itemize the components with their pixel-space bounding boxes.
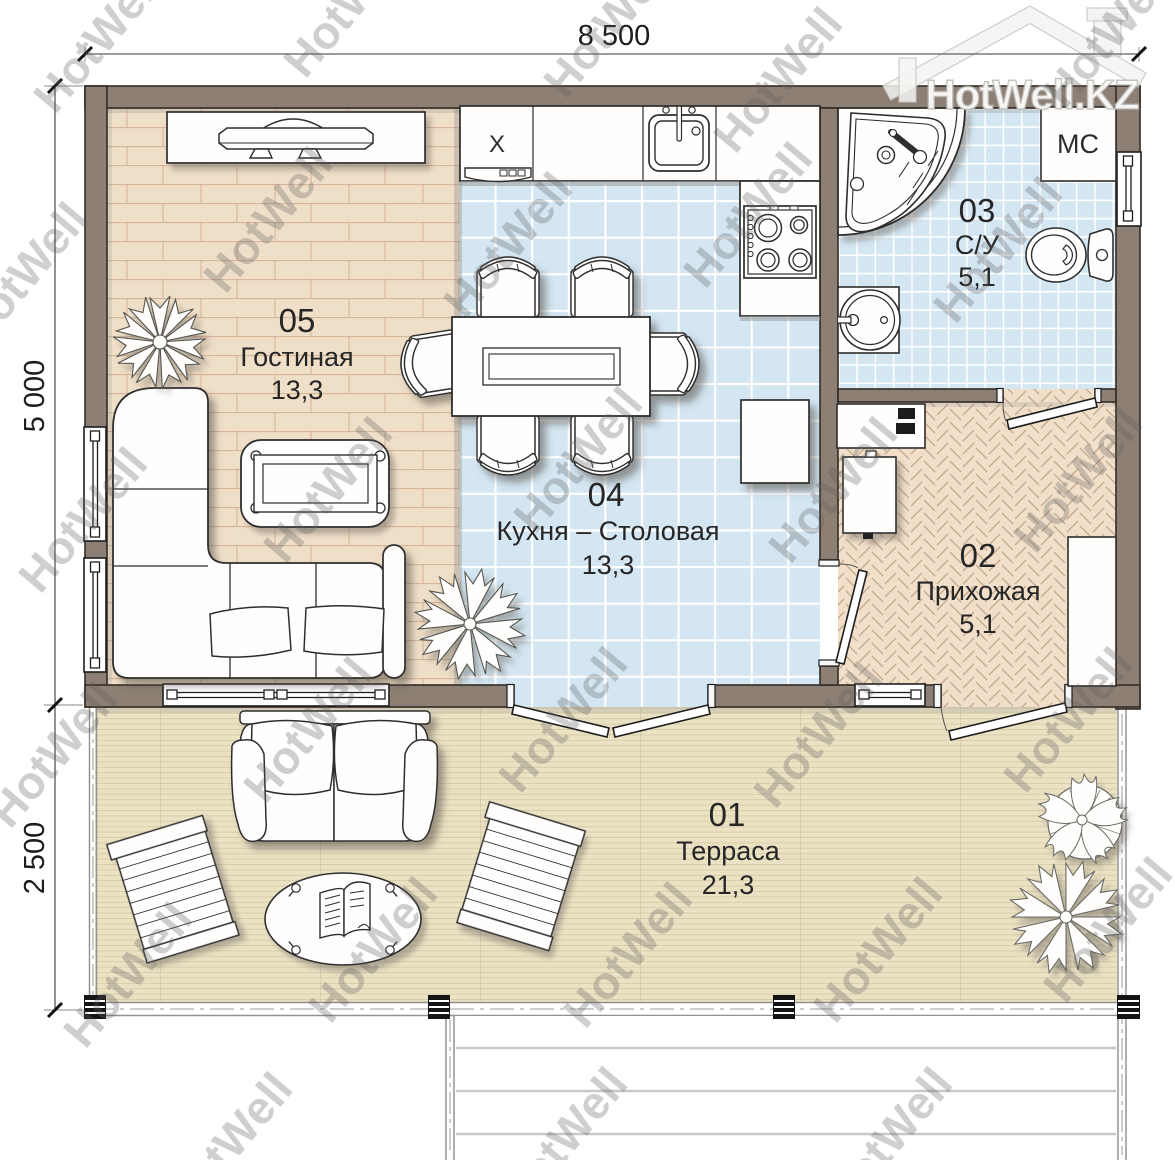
svg-text:HotWell.KZ: HotWell.KZ [925, 71, 1139, 118]
svg-text:Гостиная: Гостиная [240, 342, 353, 372]
svg-text:Прихожая: Прихожая [915, 576, 1040, 606]
svg-text:13,3: 13,3 [582, 550, 635, 580]
svg-text:HotWell: HotWell [0, 193, 97, 357]
svg-text:2 500: 2 500 [19, 822, 51, 895]
svg-text:13,3: 13,3 [271, 375, 324, 405]
svg-text:21,3: 21,3 [702, 870, 755, 900]
svg-text:HotWell: HotWell [153, 1063, 302, 1160]
svg-text:5,1: 5,1 [959, 609, 997, 639]
svg-text:Терраса: Терраса [676, 836, 781, 866]
svg-text:5 000: 5 000 [19, 360, 51, 433]
svg-text:MC: MC [1057, 129, 1099, 159]
svg-text:02: 02 [960, 537, 997, 574]
svg-text:05: 05 [279, 302, 316, 339]
svg-text:HotWell: HotWell [273, 0, 422, 87]
svg-text:X: X [489, 131, 505, 158]
svg-text:01: 01 [709, 796, 746, 833]
